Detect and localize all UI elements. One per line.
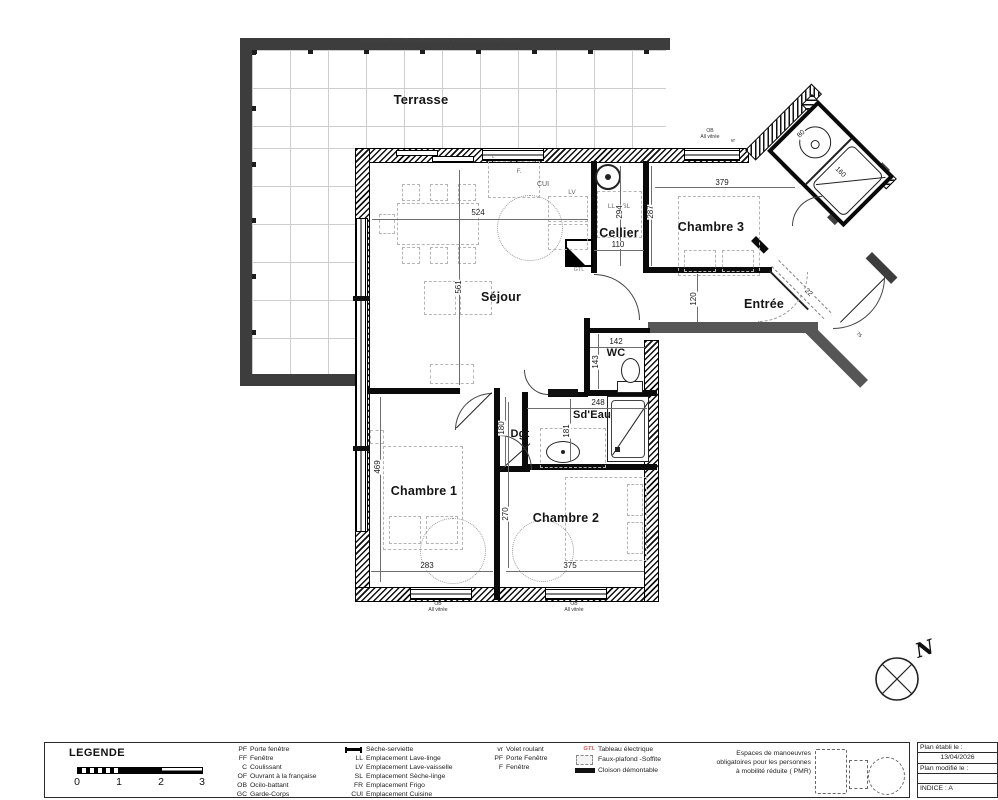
- allege-vitree-label: All vitrée: [428, 608, 447, 614]
- dim-chambre1-h: 469: [374, 459, 382, 474]
- console-outline: [430, 364, 474, 384]
- pmr-note: Espaces de manoeuvres obligatoires pour …: [615, 749, 811, 776]
- legend-label: Fenêtre: [250, 754, 273, 763]
- dim-line: [594, 250, 644, 251]
- terrace-tiles: [252, 148, 355, 374]
- terrace-wall-bottom: [240, 374, 370, 386]
- dim-entry-door: 75: [853, 329, 864, 340]
- dim-line: [459, 170, 460, 385]
- dim-line: [655, 187, 795, 188]
- legend-row: OFOuvrant à la française: [227, 772, 317, 781]
- chair: [430, 184, 448, 201]
- pmr-rect-icon: [815, 749, 847, 794]
- pmr-note-line: obligatoires pour les personnes: [615, 758, 811, 767]
- allege-vitree-label: All vitrée: [564, 608, 583, 614]
- sink-drain: [561, 450, 565, 454]
- legend-abbr: FF: [227, 754, 247, 763]
- floor-plan: Garde corps ht 1.00m + Muret 0.60m + lis…: [0, 0, 998, 800]
- legend-row: FFFenêtre: [227, 754, 317, 763]
- dim-sejour-w: 524: [470, 209, 485, 217]
- lave-vaisselle-label: LV: [568, 190, 575, 196]
- dim-chambre3-w: 379: [714, 179, 729, 187]
- room-label-chambre3: Chambre 3: [678, 220, 744, 234]
- fridge-label: F.: [516, 169, 521, 175]
- cloison-icon: [575, 766, 595, 775]
- pmr-note-line: à mobilité réduite ( PMR): [615, 767, 811, 776]
- chair: [379, 214, 395, 234]
- info-box: Plan établi le : 13/04/2026 Plan modifié…: [917, 742, 998, 798]
- pmr-circle-chambre2: [512, 520, 574, 582]
- pmr-circle-icon: [868, 757, 905, 795]
- room-label-wc: WC: [607, 347, 626, 359]
- terrace-wall-left: [240, 38, 252, 386]
- door-arc-cellier: [594, 274, 640, 320]
- dim-chambre2-h: 270: [502, 506, 510, 521]
- plan-indice: INDICE : A: [918, 784, 997, 796]
- chair: [430, 247, 448, 264]
- legend-label: Emplacement Lave-vaisselle: [366, 763, 453, 772]
- legend-abbr: FR: [343, 781, 363, 790]
- legend-col-misc: vrVolet roulant PFPorte Fenêtre FFenêtre: [483, 745, 548, 772]
- legend-abbr: LV: [343, 763, 363, 772]
- scale-tick-2: 2: [158, 776, 164, 788]
- coulissant-label: c: [492, 155, 495, 161]
- pillow: [627, 484, 643, 516]
- dim-wc-h: 143: [592, 354, 600, 369]
- dim-sdeau-h: 181: [563, 423, 571, 438]
- room-label-chambre2: Chambre 2: [533, 511, 599, 525]
- wall-chambre1-top: [368, 388, 460, 394]
- pmr-circle-chambre1: [420, 518, 486, 584]
- dim-dgt-h: 180: [498, 420, 506, 435]
- shower-drain: [615, 447, 620, 452]
- dim-chambre3-h: 287: [647, 204, 655, 219]
- volet-roulant-label: vr: [731, 139, 735, 145]
- window-chambre1-bottom: [410, 587, 472, 600]
- legend-label: Volet roulant: [506, 745, 544, 754]
- legend-label: Sèche-serviette: [366, 745, 413, 754]
- legend-label: Garde-Corps: [250, 790, 289, 799]
- legend-abbr: LL: [343, 754, 363, 763]
- dim-line: [506, 571, 644, 572]
- chair: [402, 184, 420, 201]
- pmr-circle-sejour: [497, 195, 563, 261]
- pmr-small-rect-icon: [849, 760, 868, 789]
- scale-tick-0: 0: [74, 776, 80, 788]
- legend-abbr: C: [227, 763, 247, 772]
- legend-row: FFenêtre: [483, 763, 548, 772]
- legend-row: Sèche-serviette: [343, 745, 453, 754]
- dim-line: [371, 571, 493, 572]
- legend-abbr: GC: [227, 790, 247, 799]
- legend-col-openings: PFPorte fenêtre FFFenêtre CCoulissant OF…: [227, 745, 317, 800]
- legend-row: SLEmplacement Sèche-linge: [343, 772, 453, 781]
- room-label-cellier: Cellier: [599, 226, 639, 240]
- sofa-outline: [424, 281, 456, 315]
- legend-row: CCoulissant: [227, 763, 317, 772]
- window-mullion: [353, 296, 370, 301]
- dim-wc-w: 142: [608, 338, 623, 346]
- legend-col-equipment: Sèche-serviette LLEmplacement Lave-linge…: [343, 745, 453, 800]
- legend-row: PFPorte fenêtre: [227, 745, 317, 754]
- window-chambre3-top: [684, 148, 740, 161]
- legend-abbr: OB: [227, 781, 247, 790]
- cuisine-label: CUI: [537, 182, 549, 188]
- legend-abbr: PF: [483, 754, 503, 763]
- legend-label: Coulissant: [250, 763, 282, 772]
- towel-dryer-icon: [343, 745, 363, 754]
- chair: [458, 247, 476, 264]
- dim-cellier-h: 294: [616, 204, 624, 219]
- legend-row: CUIEmplacement Cuisine: [343, 790, 453, 799]
- legend-abbr: PF: [227, 745, 247, 754]
- legend-label: Emplacement Sèche-linge: [366, 772, 445, 781]
- nightstand: [370, 430, 384, 444]
- room-label-sejour: Séjour: [481, 290, 521, 304]
- legend-label: Emplacement Frigo: [366, 781, 425, 790]
- legend-box: LEGENDE 0 1 2 3 PFPorte fenêtre FFFenêtr…: [44, 742, 910, 798]
- pillow: [627, 522, 643, 554]
- room-label-chambre1: Chambre 1: [391, 484, 457, 498]
- room-label-dgt: Dgt: [511, 428, 530, 440]
- room-label-entree: Entrée: [744, 297, 784, 311]
- pillow: [389, 516, 421, 544]
- legend-row: LLEmplacement Lave-linge: [343, 754, 453, 763]
- plan-modified-label: Plan modifié le :: [918, 764, 997, 774]
- terrace-tiles: [252, 50, 666, 148]
- garde-corps-note: Garde corps ht 1.00m + Muret 0.60m + lis…: [360, 38, 518, 44]
- dim-line: [372, 219, 588, 220]
- dim-chambre1-w: 283: [419, 562, 434, 570]
- sliding-door-terrasse-pane: [432, 156, 474, 162]
- garde-corps-posts: [252, 50, 256, 374]
- faux-plafond-icon: [575, 755, 595, 764]
- plan-modified-value: [918, 774, 997, 784]
- legend-label: Ocilo-battant: [250, 781, 289, 790]
- legend-label: Porte Fenêtre: [506, 754, 548, 763]
- scale-tick-1: 1: [116, 776, 122, 788]
- chair: [458, 184, 476, 201]
- dining-table: [397, 203, 479, 245]
- legend-row: LVEmplacement Lave-vaisselle: [343, 763, 453, 772]
- gtl-abbr: GTL: [575, 745, 595, 754]
- room-label-sdeau: Sd'Eau: [573, 409, 611, 421]
- room-label-terrasse: Terrasse: [394, 92, 449, 107]
- water-heater-dot: [605, 174, 611, 180]
- north-letter: N: [911, 634, 937, 663]
- legend-label: Emplacement Cuisine: [366, 790, 432, 799]
- legend-abbr: F: [483, 763, 503, 772]
- dim-sdeau-w: 248: [590, 399, 605, 407]
- legend-label: Fenêtre: [506, 763, 529, 772]
- legend-title: LEGENDE: [69, 747, 125, 759]
- dim-line: [508, 402, 509, 568]
- legend-label: Porte fenêtre: [250, 745, 289, 754]
- toilet-bowl: [621, 358, 640, 383]
- legend-label: Ouvrant à la française: [250, 772, 317, 781]
- chair: [402, 247, 420, 264]
- north-symbol: N: [860, 632, 950, 717]
- exterior-wall-right: [644, 340, 659, 602]
- exterior-wall-bottom: [355, 587, 659, 602]
- pillow: [684, 250, 716, 272]
- pillow: [722, 250, 754, 272]
- allege-vitree-label: All vitrée: [700, 135, 719, 141]
- garde-corps-posts: [252, 50, 666, 54]
- dim-chambre2-w: 375: [562, 562, 577, 570]
- scale-seg-half: [162, 768, 202, 773]
- legend-row: vrVolet roulant: [483, 745, 548, 754]
- window-sejour-left: [355, 218, 368, 532]
- scale-tick-3: 3: [199, 776, 205, 788]
- legend-row: GCGarde-Corps: [227, 790, 317, 799]
- legend-abbr: CUI: [343, 790, 363, 799]
- door-arc-bath-wing: [792, 196, 822, 226]
- wall-wc-top: [584, 328, 650, 333]
- fridge-outline: [488, 161, 540, 198]
- scale-bar: [77, 767, 203, 774]
- plan-established-date: 13/04/2026: [918, 753, 997, 764]
- legend-row: PFPorte Fenêtre: [483, 754, 548, 763]
- legend-label: Emplacement Lave-linge: [366, 754, 441, 763]
- legend-row: OBOcilo-battant: [227, 781, 317, 790]
- dim-sejour-h: 561: [455, 279, 463, 294]
- legend-abbr: vr: [483, 745, 503, 754]
- wall-entree-bottom: [648, 322, 818, 333]
- dim-line: [380, 397, 381, 582]
- scale-seg-checker: [78, 768, 120, 773]
- legend-abbr: OF: [227, 772, 247, 781]
- plan-established-label: Plan établi le :: [918, 743, 997, 753]
- scale-seg-black: [120, 768, 162, 773]
- dim-cellier-w: 110: [611, 241, 626, 249]
- gtl-label: GTL: [574, 268, 585, 274]
- window-chambre2-bottom: [545, 587, 607, 600]
- dim-entree-h: 120: [690, 291, 698, 306]
- window-mullion: [353, 446, 370, 451]
- towel-dryer: [548, 389, 578, 396]
- legend-row: FREmplacement Frigo: [343, 781, 453, 790]
- legend-abbr: SL: [343, 772, 363, 781]
- pmr-note-line: Espaces de manoeuvres: [615, 749, 811, 758]
